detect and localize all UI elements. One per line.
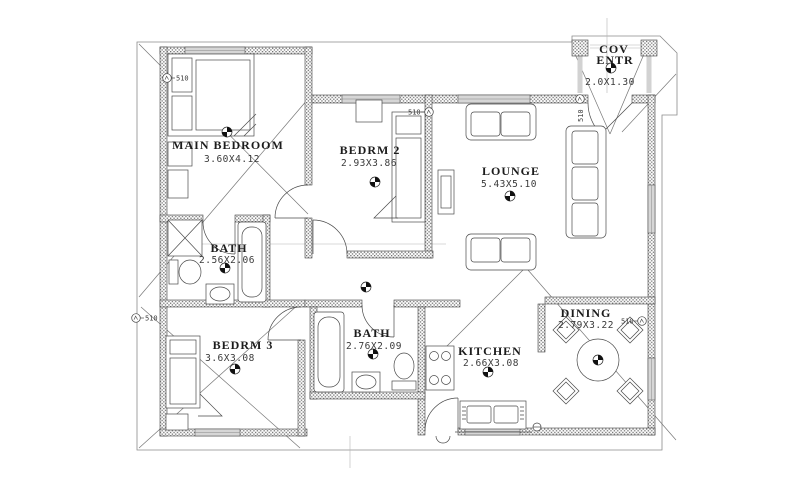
window-lounge-top [458, 95, 530, 103]
label-lounge: LOUNGE [482, 164, 540, 178]
label-dining: DINING [561, 306, 612, 320]
label-bath1: BATH [210, 241, 247, 255]
marker-510-bedrm2: 510 [408, 108, 433, 117]
dims-bedrm3: 3.6X3.08 [205, 353, 255, 364]
kitchen-sink-counter [455, 401, 532, 432]
window-bedrm3-bottom [195, 429, 240, 436]
dims-main-bedroom: 3.60X4.12 [204, 154, 260, 165]
marker-510-bedrm3: 510 [132, 314, 158, 323]
sofa-lounge-top [466, 104, 536, 140]
dims-kitchen: 2.66X3.08 [463, 358, 519, 369]
marker-label: 510 [577, 109, 585, 122]
dims-dining: 2.79X3.22 [558, 320, 614, 331]
stove [426, 346, 454, 390]
shower-bath1 [168, 220, 202, 256]
window-lounge-right [648, 185, 655, 233]
porch-column-left [572, 40, 588, 56]
sofa-lounge-right [566, 126, 606, 238]
marker-label: 510 [621, 318, 634, 326]
door-main-bedroom [275, 185, 308, 218]
dims-cov-entr: 2.0X1.30 [585, 77, 635, 88]
window-dining-right [648, 358, 655, 400]
marker-kitchen-wall [533, 423, 541, 431]
door-kitchen [425, 398, 458, 443]
dims-bath1: 2.56X2.06 [199, 255, 255, 266]
nightstand [166, 414, 188, 430]
marker-label: 510 [408, 109, 421, 117]
window-main-bedroom-top [185, 47, 245, 54]
dims-lounge: 5.43X5.10 [481, 179, 537, 190]
floor-plan-canvas: 510 510 510 510 510 MAIN BEDROOM 3.60X4. [0, 0, 800, 480]
sink-bath2 [352, 372, 380, 392]
label-bedrm3: BEDRM 3 [213, 338, 274, 352]
door-bedrm3 [268, 307, 301, 340]
marker-510-entrance: 510 [576, 95, 585, 122]
label-main-bedroom: MAIN BEDROOM [172, 138, 284, 152]
porch-column-right [641, 40, 657, 56]
marker-label: 510 [176, 75, 189, 83]
marker-510-top-left: 510 [163, 74, 189, 83]
bathtub-bath2 [314, 312, 344, 392]
nightstand [356, 100, 382, 122]
label-bath2: BATH [353, 326, 390, 340]
dims-bath2: 2.76X2.09 [346, 341, 402, 352]
door-bedrm2 [313, 220, 347, 254]
sofa-lounge-bottom [466, 234, 536, 270]
label-kitchen: KITCHEN [458, 344, 522, 358]
tv-cabinet [438, 170, 454, 214]
marker-510-dining: 510 [621, 317, 646, 326]
label-bedrm2: BEDRM 2 [340, 143, 401, 157]
dresser [168, 170, 188, 198]
toilet-bath2 [392, 353, 416, 390]
dims-bedrm2: 2.93X3.86 [341, 158, 397, 169]
sink-bath1 [206, 284, 234, 304]
toilet-bath1 [169, 260, 201, 284]
label-entr: ENTR [596, 53, 633, 67]
marker-label: 510 [145, 315, 158, 323]
